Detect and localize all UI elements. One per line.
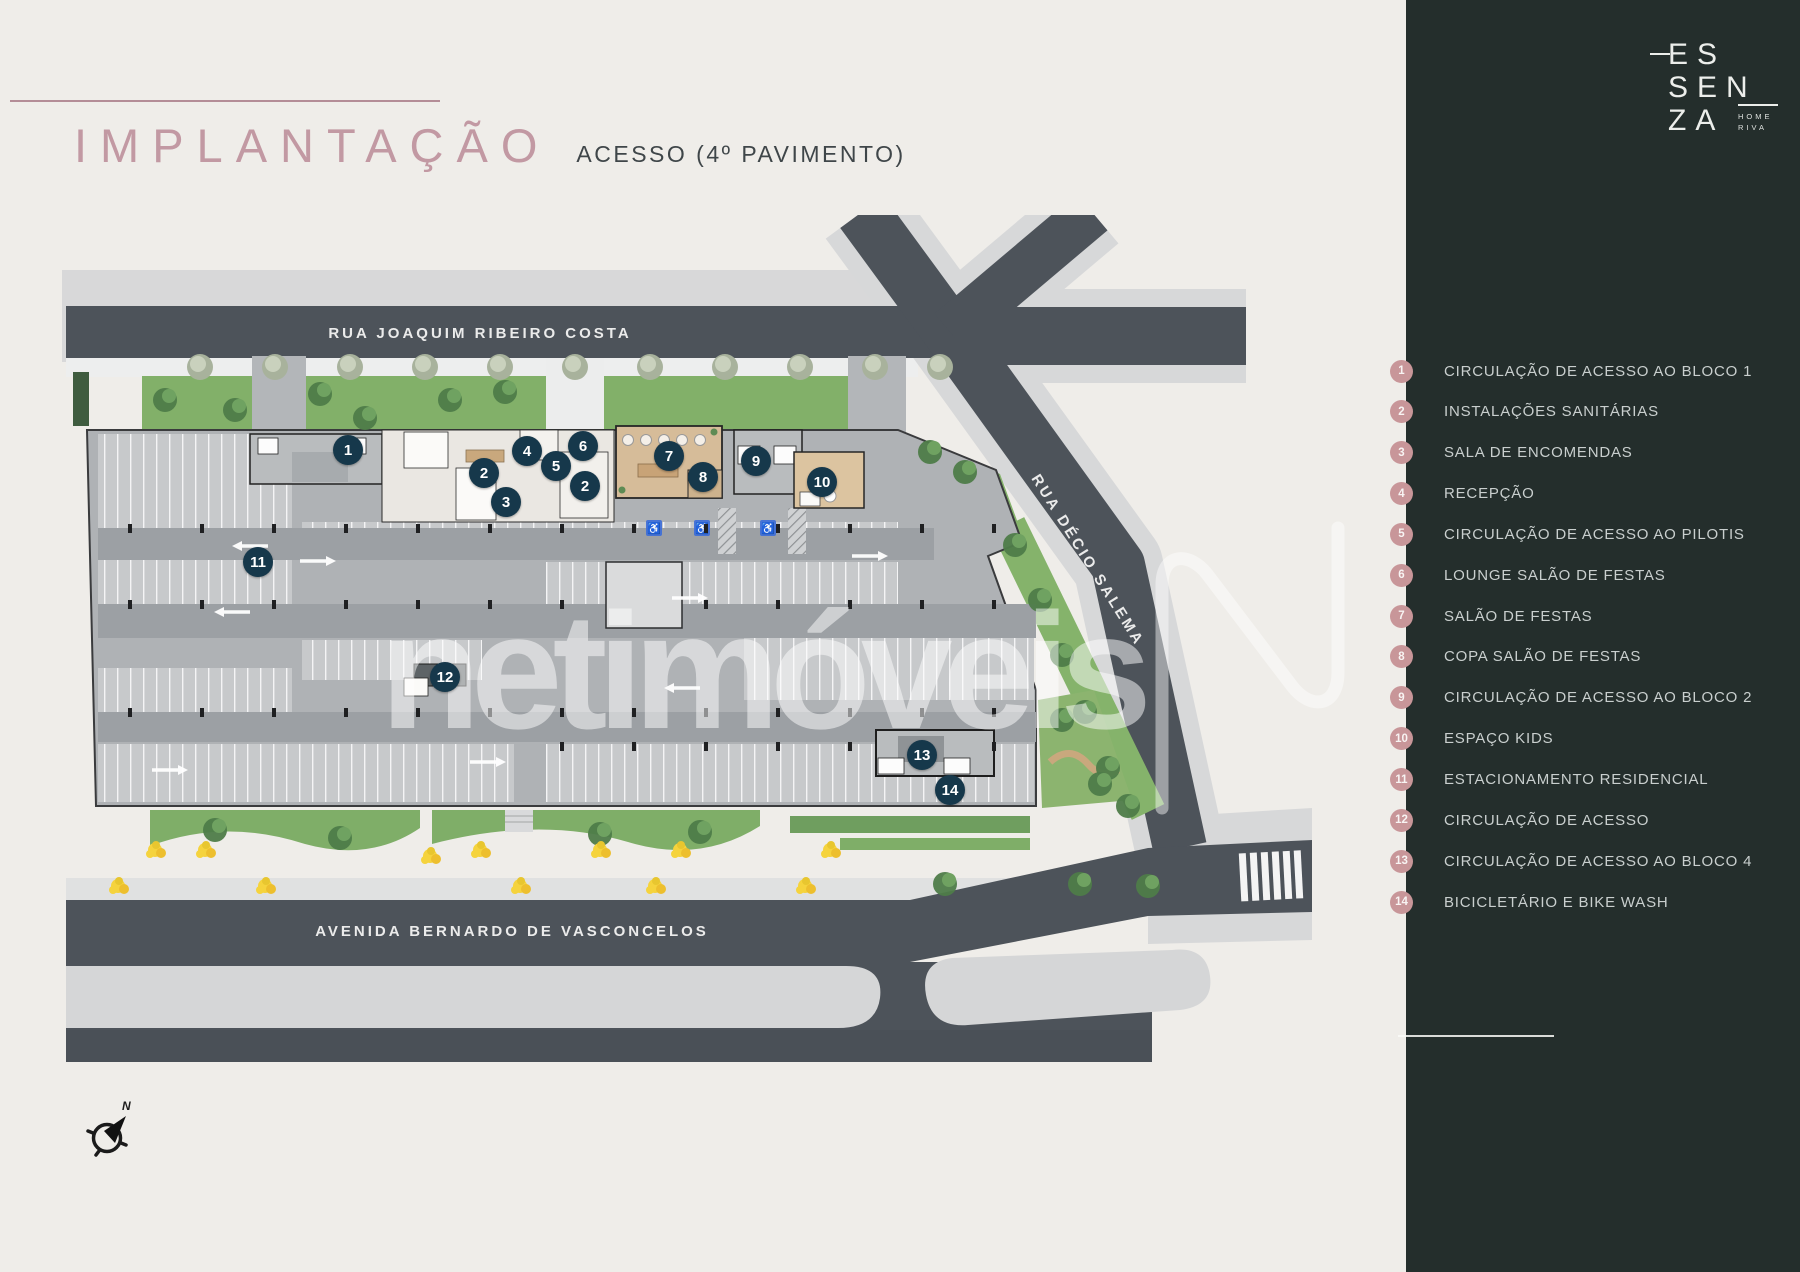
legend-item: 5CIRCULAÇÃO DE ACESSO AO PILOTIS: [1390, 523, 1745, 546]
header: IMPLANTAÇÃO ACESSO (4º PAVIMENTO): [74, 118, 906, 173]
legend-number-badge: 5: [1390, 523, 1413, 546]
legend-item: 10ESPAÇO KIDS: [1390, 727, 1553, 750]
legend-number-badge: 10: [1390, 727, 1413, 750]
legend-label: INSTALAÇÕES SANITÁRIAS: [1444, 403, 1659, 420]
legend-item: 3SALA DE ENCOMENDAS: [1390, 441, 1633, 464]
logo-line-3: ZA: [1668, 104, 1724, 137]
site-plan-drawing: ♿ ♿ ♿: [60, 215, 1350, 1225]
legend-number-badge: 14: [1390, 891, 1413, 914]
logo-dash: [1650, 53, 1670, 55]
legend-item: 12CIRCULAÇÃO DE ACESSO: [1390, 809, 1649, 832]
street-label-bottom: AVENIDA BERNARDO DE VASCONCELOS: [315, 923, 709, 940]
legend-label: BICICLETÁRIO E BIKE WASH: [1444, 894, 1669, 911]
legend-label: LOUNGE SALÃO DE FESTAS: [1444, 567, 1666, 584]
legend-number-badge: 7: [1390, 605, 1413, 628]
svg-text:♿: ♿: [761, 522, 775, 535]
legend-number-badge: 4: [1390, 482, 1413, 505]
legend-label: ESPAÇO KIDS: [1444, 730, 1553, 747]
legend-label: CIRCULAÇÃO DE ACESSO AO PILOTIS: [1444, 526, 1745, 543]
legend-item: 13CIRCULAÇÃO DE ACESSO AO BLOCO 4: [1390, 850, 1752, 873]
legend-item: 11ESTACIONAMENTO RESIDENCIAL: [1390, 768, 1708, 791]
legend-number-badge: 3: [1390, 441, 1413, 464]
compass-icon: N: [88, 1099, 131, 1155]
logo-sub-home: HOME: [1738, 111, 1790, 122]
legend-item: 2INSTALAÇÕES SANITÁRIAS: [1390, 400, 1659, 423]
sidebar-divider-line: [1398, 1035, 1554, 1037]
page-title: IMPLANTAÇÃO: [74, 118, 550, 173]
legend-number-badge: 2: [1390, 400, 1413, 423]
logo-sub-riva: RIVA: [1738, 122, 1790, 133]
legend-item: 1CIRCULAÇÃO DE ACESSO AO BLOCO 1: [1390, 360, 1752, 383]
legend-label: SALÃO DE FESTAS: [1444, 608, 1592, 625]
legend-item: 8COPA SALÃO DE FESTAS: [1390, 645, 1641, 668]
netimoveis-watermark: netimóveis: [380, 579, 1145, 763]
legend-number-badge: 6: [1390, 564, 1413, 587]
compass-north-label: N: [122, 1099, 131, 1113]
legend-label: ESTACIONAMENTO RESIDENCIAL: [1444, 771, 1708, 788]
title-rule: [10, 100, 440, 102]
legend-item: 9CIRCULAÇÃO DE ACESSO AO BLOCO 2: [1390, 686, 1752, 709]
legend-number-badge: 12: [1390, 809, 1413, 832]
logo-sub-rule: [1738, 104, 1778, 106]
legend-number-badge: 8: [1390, 645, 1413, 668]
legend-label: CIRCULAÇÃO DE ACESSO: [1444, 812, 1649, 829]
logo-sub-brand: HOME RIVA: [1738, 104, 1790, 133]
legend-number-badge: 13: [1390, 850, 1413, 873]
site-plan-map: ♿ ♿ ♿: [60, 215, 1350, 1225]
sidebar-panel: [1406, 0, 1800, 1272]
legend-label: RECEPÇÃO: [1444, 485, 1535, 502]
legend-number-badge: 11: [1390, 768, 1413, 791]
logo-line-1: ES: [1668, 38, 1726, 71]
logo-line-2: SEN: [1668, 71, 1757, 104]
legend-item: 6LOUNGE SALÃO DE FESTAS: [1390, 564, 1666, 587]
essenza-logo: ES SEN ZA HOME RIVA: [1646, 38, 1796, 158]
legend-label: SALA DE ENCOMENDAS: [1444, 444, 1633, 461]
legend-label: CIRCULAÇÃO DE ACESSO AO BLOCO 1: [1444, 363, 1752, 380]
page: ES SEN ZA HOME RIVA IMPLANTAÇÃO ACESSO (…: [0, 0, 1800, 1272]
street-label-top: RUA JOAQUIM RIBEIRO COSTA: [328, 325, 631, 342]
svg-text:♿: ♿: [647, 522, 661, 535]
legend-item: 4RECEPÇÃO: [1390, 482, 1535, 505]
legend-number-badge: 1: [1390, 360, 1413, 383]
page-subtitle: ACESSO (4º PAVIMENTO): [576, 141, 905, 168]
legend-item: 14BICICLETÁRIO E BIKE WASH: [1390, 891, 1669, 914]
legend-number-badge: 9: [1390, 686, 1413, 709]
legend-label: COPA SALÃO DE FESTAS: [1444, 648, 1641, 665]
legend-label: CIRCULAÇÃO DE ACESSO AO BLOCO 2: [1444, 689, 1752, 706]
legend-item: 7SALÃO DE FESTAS: [1390, 605, 1592, 628]
legend-label: CIRCULAÇÃO DE ACESSO AO BLOCO 4: [1444, 853, 1752, 870]
